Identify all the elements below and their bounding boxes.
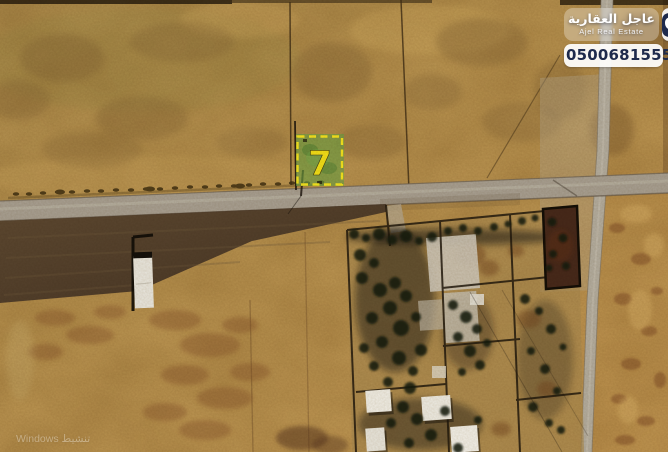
satellite-imagery: 7 (0, 0, 668, 452)
agency-logo-icon (662, 8, 668, 41)
listing-map-image: 7 عاجل العقارية Ajel Real Estate 0500681… (0, 0, 668, 452)
agency-name-arabic: عاجل العقارية (568, 12, 655, 26)
agency-name-english: Ajel Real Estate (568, 27, 655, 36)
agency-watermark: عاجل العقارية Ajel Real Estate 050068155… (564, 8, 663, 67)
agency-name-card: عاجل العقارية Ajel Real Estate (564, 8, 659, 41)
windows-activation-watermark: تنشيط Windows (16, 433, 90, 445)
agency-phone: 0500681555 (564, 44, 663, 67)
